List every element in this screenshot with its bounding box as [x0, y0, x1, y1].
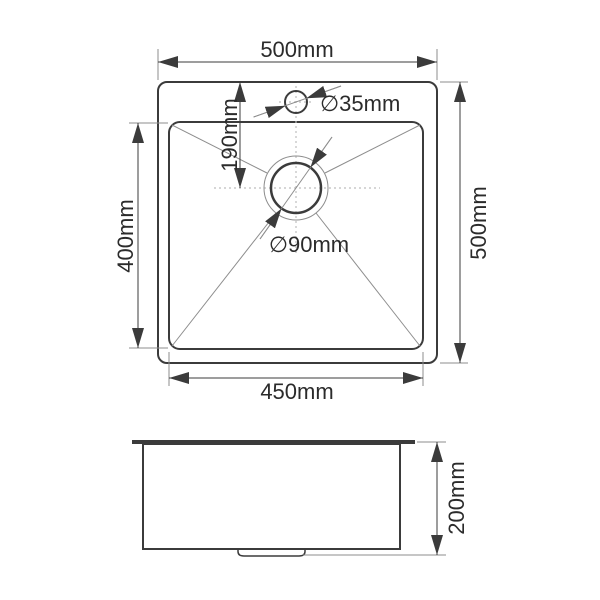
rim-flange: [132, 440, 415, 444]
sink-technical-drawing: 500mm 500mm 400mm 190mm ∅35mm: [0, 0, 600, 600]
dim-overall-width: 500mm: [158, 37, 437, 80]
bowl-depth-label: 400mm: [113, 199, 138, 272]
drain-boss: [238, 549, 305, 556]
body-profile: [143, 444, 400, 549]
faucet-diameter-label: ∅35mm: [320, 91, 400, 116]
drawing-canvas: 500mm 500mm 400mm 190mm ∅35mm: [0, 0, 600, 600]
height-label: 200mm: [444, 461, 469, 534]
drain-diameter-label: ∅90mm: [269, 232, 349, 257]
overall-width-label: 500mm: [260, 37, 333, 62]
sink-outer-edge: [158, 82, 437, 363]
drain-offset-label: 190mm: [217, 98, 242, 171]
bowl-width-label: 450mm: [260, 379, 333, 404]
top-view: 500mm 500mm 400mm 190mm ∅35mm: [113, 37, 491, 404]
dim-overall-depth: 500mm: [440, 82, 491, 363]
overall-depth-label: 500mm: [466, 186, 491, 259]
side-view: 200mm: [132, 440, 469, 556]
